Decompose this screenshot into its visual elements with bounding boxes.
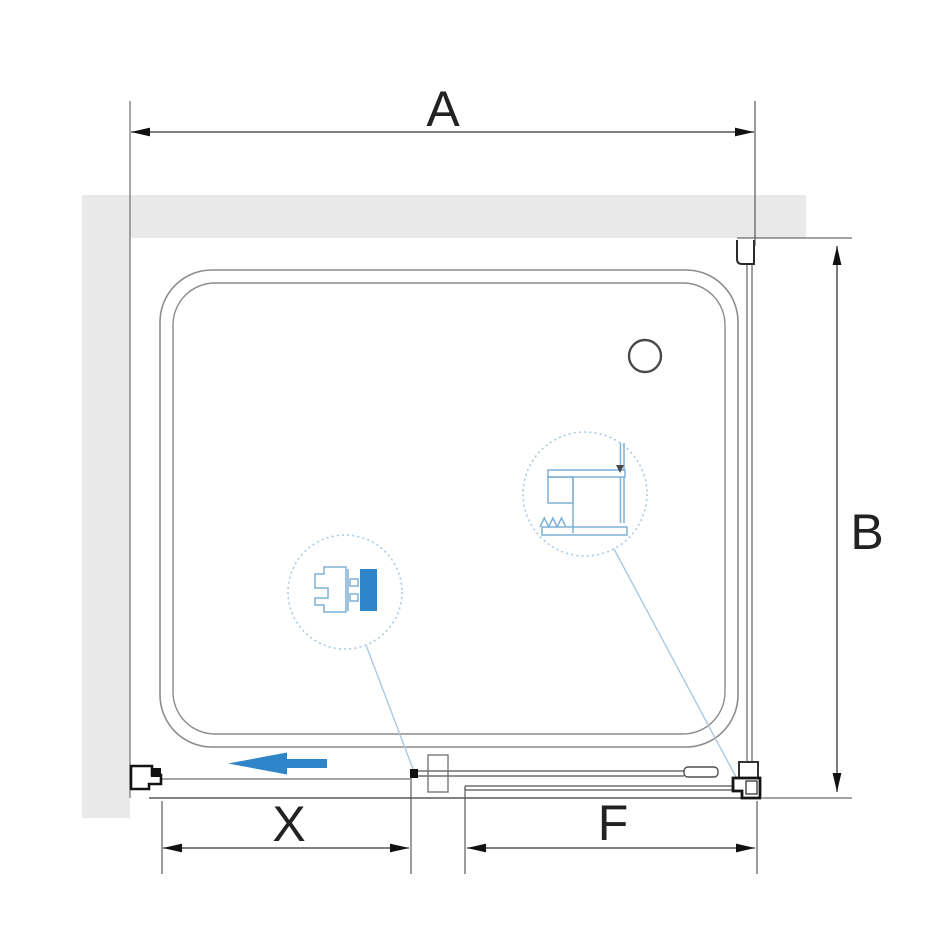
dim-b-arrow-top-icon bbox=[833, 246, 842, 265]
dim-a-arrow-right-icon bbox=[735, 128, 754, 137]
walls bbox=[82, 101, 806, 818]
seal-spring-icon bbox=[540, 518, 566, 527]
drain-circle bbox=[629, 340, 661, 372]
dimension-x: X bbox=[162, 778, 411, 874]
rail-top-bar bbox=[548, 470, 625, 477]
dim-f-arrow-left-icon bbox=[467, 844, 486, 853]
rail-left-box bbox=[548, 477, 573, 503]
dim-x-arrow-left-icon bbox=[163, 844, 182, 853]
detail-callout-circle-right bbox=[523, 432, 647, 556]
door-handle bbox=[428, 755, 448, 792]
wall-left bbox=[82, 195, 130, 818]
profile-detail-right bbox=[540, 443, 627, 535]
dim-a-arrow-left-icon bbox=[131, 128, 150, 137]
corner-bracket-inset bbox=[746, 781, 757, 794]
glass-edge-fill bbox=[360, 569, 377, 611]
dimension-b: B bbox=[737, 238, 884, 798]
wall-profile-section-icon bbox=[315, 567, 346, 612]
rail-right-channel bbox=[621, 477, 625, 523]
dim-x-arrow-right-icon bbox=[390, 844, 409, 853]
callout-leader-line-right bbox=[614, 549, 736, 777]
bottom-door-assembly bbox=[131, 755, 760, 798]
door-end-cap bbox=[684, 767, 718, 777]
dim-a-label: A bbox=[426, 81, 460, 137]
wall-top bbox=[82, 195, 806, 238]
fixed-glass-panel bbox=[747, 246, 752, 762]
profile-tab-top bbox=[350, 579, 358, 586]
dim-f-label: F bbox=[598, 795, 629, 851]
callout-leader-line-left bbox=[366, 645, 413, 769]
detail-callouts bbox=[288, 432, 736, 777]
detail-callout-circle-left bbox=[288, 535, 402, 649]
profile-detail-left bbox=[315, 567, 358, 612]
wall-profile-top-bracket bbox=[737, 240, 754, 264]
rail-bottom-bar bbox=[542, 527, 627, 535]
diagram-canvas: A B X F bbox=[0, 0, 950, 950]
dim-x-label: X bbox=[272, 796, 305, 852]
dim-b-arrow-bottom-icon bbox=[833, 773, 842, 792]
door-edge-block bbox=[410, 769, 418, 778]
slide-direction-arrow-icon bbox=[228, 753, 327, 775]
corner-bracket-collar bbox=[739, 762, 758, 778]
bracket-block-fill bbox=[151, 768, 161, 777]
dim-b-label: B bbox=[850, 504, 883, 560]
glass-insert-arrow-icon bbox=[616, 465, 624, 473]
sliding-door-panel bbox=[418, 771, 684, 776]
profile-tab-bottom bbox=[350, 594, 358, 601]
shower-enclosure-diagram: A B X F bbox=[0, 0, 950, 950]
dim-f-arrow-right-icon bbox=[736, 844, 755, 853]
dimension-f: F bbox=[465, 790, 757, 874]
fixed-bottom-panel-lines bbox=[465, 786, 733, 790]
